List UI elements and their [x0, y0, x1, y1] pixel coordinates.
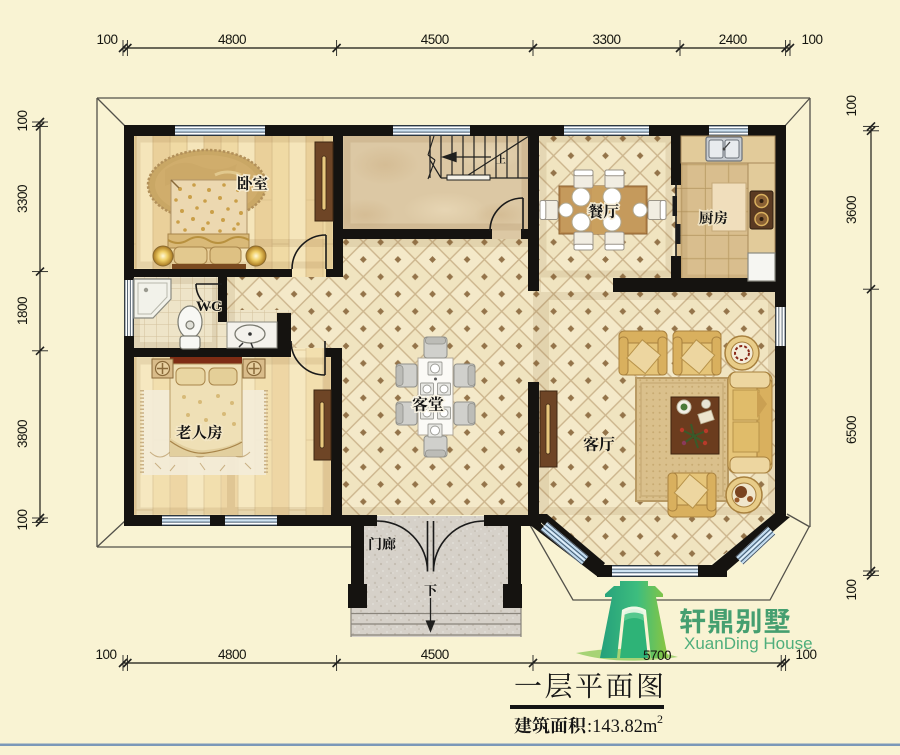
- svg-text:2: 2: [657, 712, 663, 726]
- svg-text:100: 100: [96, 32, 117, 47]
- svg-text:100: 100: [15, 509, 30, 530]
- svg-text:3800: 3800: [15, 420, 30, 448]
- svg-text:1800: 1800: [15, 297, 30, 325]
- svg-text:3300: 3300: [592, 32, 620, 47]
- svg-text:XuanDing House: XuanDing House: [684, 634, 813, 653]
- svg-text:100: 100: [95, 647, 116, 662]
- svg-text:100: 100: [801, 32, 822, 47]
- svg-text:100: 100: [15, 110, 30, 131]
- svg-text:WC: WC: [196, 299, 222, 315]
- svg-text:4500: 4500: [421, 32, 449, 47]
- svg-text:100: 100: [844, 579, 859, 600]
- svg-text:100: 100: [795, 647, 816, 662]
- svg-text:4500: 4500: [421, 647, 449, 662]
- svg-text:3300: 3300: [15, 185, 30, 213]
- svg-text:100: 100: [844, 95, 859, 116]
- svg-text:3600: 3600: [844, 196, 859, 224]
- svg-text:4800: 4800: [218, 647, 246, 662]
- svg-text:6500: 6500: [844, 416, 859, 444]
- svg-text:4800: 4800: [218, 32, 246, 47]
- svg-text::143.82m: :143.82m: [587, 717, 658, 737]
- svg-text:2400: 2400: [719, 32, 747, 47]
- svg-text:5700: 5700: [643, 648, 671, 663]
